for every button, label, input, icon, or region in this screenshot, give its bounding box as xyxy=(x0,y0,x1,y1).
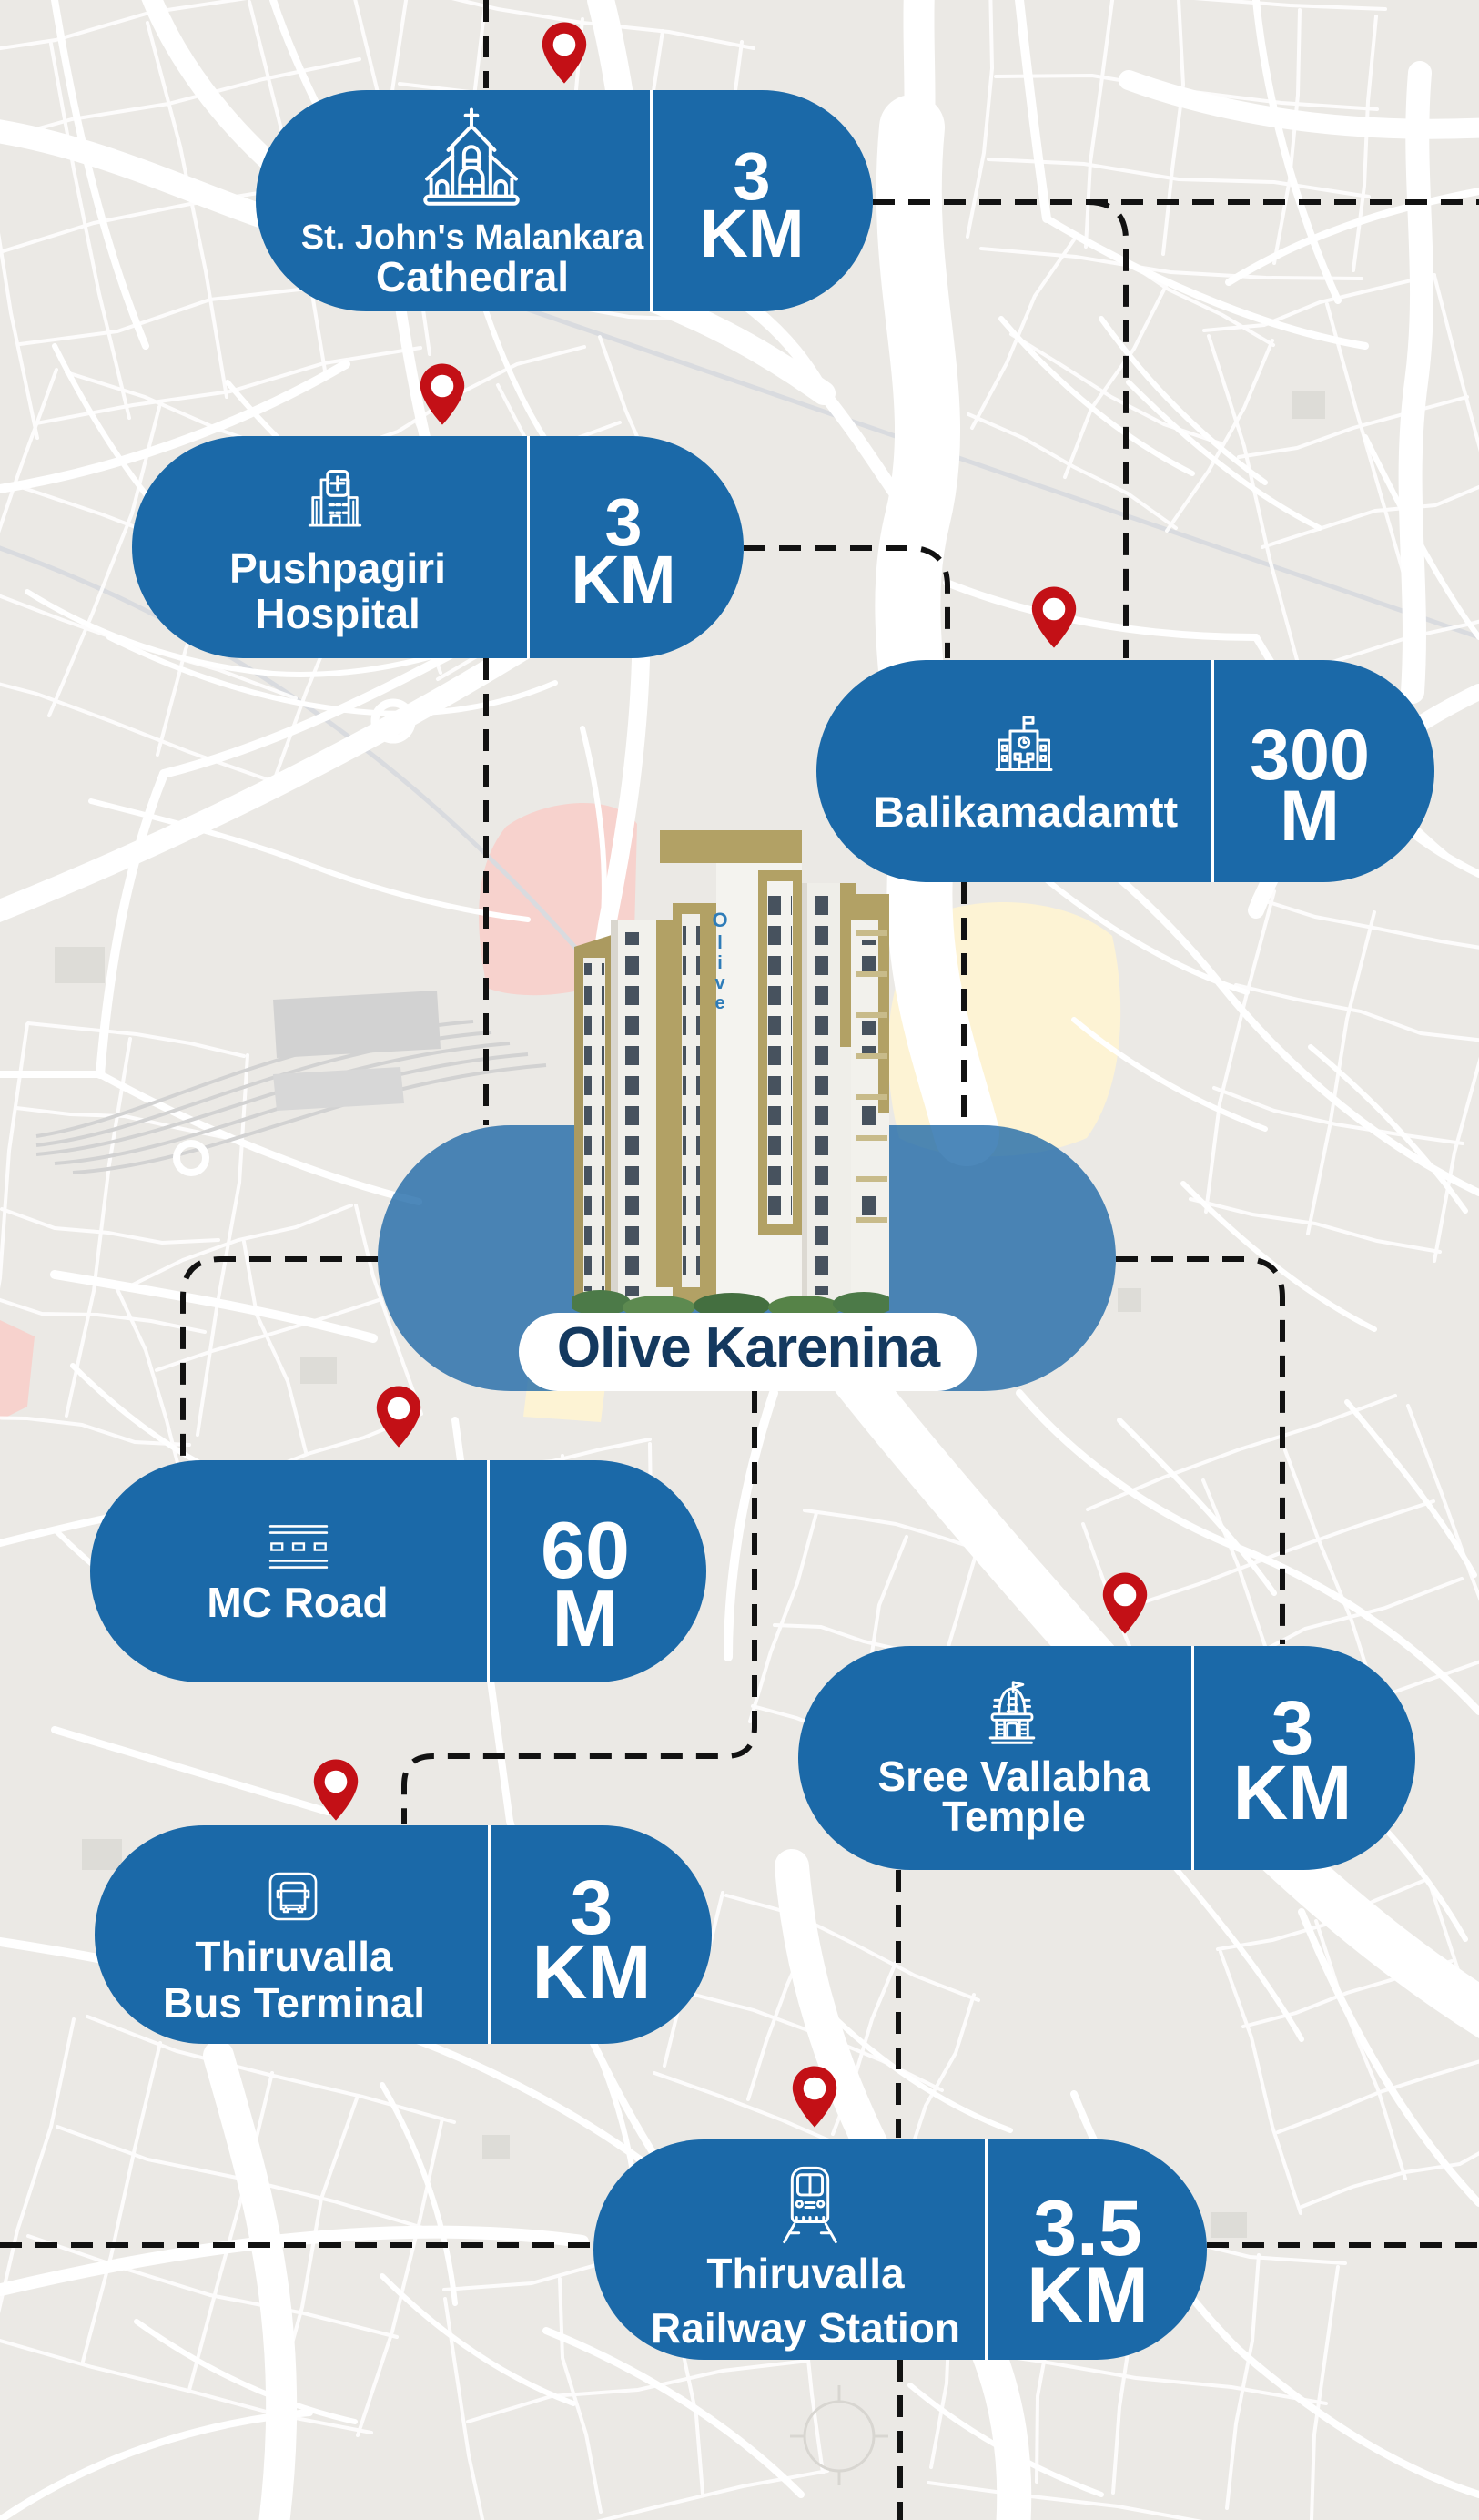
svg-text:O: O xyxy=(712,909,727,931)
svg-text:i: i xyxy=(717,953,723,973)
svg-text:l: l xyxy=(717,933,723,953)
svg-text:e: e xyxy=(714,993,724,1013)
svg-text:v: v xyxy=(714,973,725,993)
